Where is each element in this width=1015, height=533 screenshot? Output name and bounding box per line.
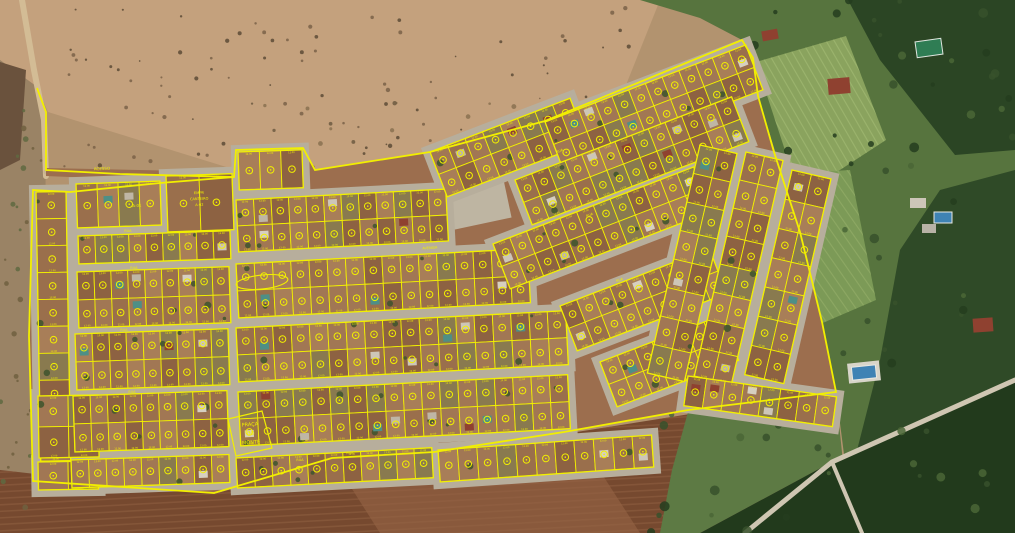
vegetation-speckle: [397, 18, 401, 22]
block: 12.0012.0012.00: [238, 150, 303, 190]
vegetation-speckle: [908, 163, 914, 169]
vegetation-speckle: [984, 481, 990, 487]
lot-dimension-label: 12.00: [535, 313, 542, 316]
lot-dimension-label: 12.00: [244, 392, 251, 395]
block: 12.0012.0012.0012.0012.0012.0012.0012.00…: [71, 454, 230, 488]
vegetation-speckle: [132, 155, 136, 159]
vegetation-speckle: [272, 129, 275, 132]
lot-dimension-label: 12.00: [553, 312, 560, 315]
lot-dimension-label: 12.00: [95, 396, 102, 399]
farm-roof-right-2: [922, 224, 936, 233]
lot-dimension-label: 12.00: [317, 388, 324, 391]
vegetation-speckle: [69, 49, 71, 51]
lot-dimension-label: 12.00: [80, 335, 87, 338]
lot-dimension-label: 12.00: [50, 397, 57, 400]
lot-dimension-label: 12.00: [50, 463, 57, 466]
lot-dimension-label: 12.00: [600, 439, 607, 442]
vegetation-speckle: [909, 142, 919, 152]
lot-dimension-label: 12.00: [201, 232, 208, 235]
vegetation-speckle: [93, 146, 96, 149]
lot-dimension-label: 12.00: [333, 260, 340, 263]
vegetation-speckle: [117, 68, 120, 71]
lot-dimension-label: 12.00: [245, 152, 252, 155]
street-name-label: RUA: [326, 385, 334, 389]
vegetation-speckle: [263, 57, 266, 60]
lot-dimension-label: 12.00: [294, 198, 301, 201]
vegetation-speckle: [386, 88, 390, 92]
vegetation-speckle: [918, 474, 922, 478]
lot-dimension-label: 12.00: [99, 272, 106, 275]
vegetation-speckle: [783, 514, 790, 521]
vegetation-speckle: [961, 293, 966, 298]
lot-dimension-label: 12.00: [442, 254, 449, 257]
vegetation-speckle: [889, 80, 897, 88]
lot-dimension-label: 12.00: [278, 262, 285, 265]
vegetation-speckle: [602, 46, 604, 48]
vegetation-speckle: [660, 501, 670, 511]
vegetation-speckle: [314, 49, 317, 52]
vegetation-speckle: [271, 39, 275, 43]
vegetation-speckle: [19, 228, 22, 231]
vegetation-speckle: [1, 479, 6, 484]
block: 12.0012.0012.0012.0012.0012.0012.0012.00…: [77, 267, 231, 328]
lot-dimension-label: 12.00: [199, 330, 206, 333]
lot-dimension-label: 12.00: [131, 333, 138, 336]
lot-dimension-label: 12.00: [167, 270, 174, 273]
vegetation-speckle: [460, 129, 462, 131]
lot-dimension-label: 12.00: [242, 264, 249, 267]
lot-dimension-label: 12.00: [94, 460, 101, 463]
lot-dimension-label: 12.00: [445, 382, 452, 385]
lot-dimension-label: 12.00: [49, 269, 56, 272]
lot-dimension-label: 12.00: [409, 384, 416, 387]
vegetation-speckle: [971, 504, 980, 513]
canteiro-label: A-02: [195, 203, 203, 207]
house-roof: [328, 199, 337, 206]
vegetation-speckle: [23, 136, 29, 142]
vegetation-speckle: [967, 110, 976, 119]
lot-dimension-label: 12.00: [217, 268, 224, 271]
vegetation-speckle: [392, 101, 396, 105]
vegetation-speckle: [511, 73, 514, 76]
lot-dimension-label: 12.00: [483, 447, 490, 450]
lot-dimension-label: 12.00: [364, 194, 371, 197]
vegetation-speckle: [656, 513, 661, 518]
lot-dimension-label: 12.00: [542, 443, 549, 446]
lot-dimension-label: 12.00: [276, 199, 283, 202]
vegetation-speckle: [222, 142, 226, 146]
vegetation-speckle: [72, 53, 76, 57]
vegetation-speckle: [710, 485, 720, 495]
lot-dimension-label: 12.00: [479, 252, 486, 255]
vegetation-speckle: [887, 359, 896, 368]
lot-dimension-label: 12.00: [48, 193, 55, 196]
vegetation-speckle: [269, 84, 271, 86]
satellite-map-svg[interactable]: 12.0012.0012.0012.0012.0012.0012.0012.00…: [0, 0, 1015, 533]
lot-dimension-label: 12.00: [50, 296, 57, 299]
vegetation-speckle: [585, 96, 588, 99]
vegetation-speckle: [978, 8, 988, 18]
vegetation-speckle: [129, 79, 132, 82]
lot-dimension-label: 12.00: [346, 195, 353, 198]
lot-dimension-label: 12.00: [100, 236, 107, 239]
lot-dimension-label: 12.00: [311, 197, 318, 200]
vegetation-speckle: [10, 202, 15, 207]
vegetation-speckle: [180, 15, 182, 17]
vegetation-speckle: [194, 76, 198, 80]
vegetation-speckle: [868, 141, 874, 147]
lot-dimension-label: 12.00: [49, 242, 56, 245]
lot-dimension-label: 12.00: [480, 316, 487, 319]
vegetation-speckle: [383, 82, 386, 85]
lot-dimension-label: 12.00: [147, 394, 154, 397]
block: 12.0012.0012.0012.0012.0012.0012.0012.00…: [75, 329, 230, 390]
lot-dimension-label: 12.00: [112, 395, 119, 398]
lot-dimension-label: 12.00: [313, 455, 320, 458]
block: 12.0012.0012.0012.0012.0012.0012.0012.00…: [73, 391, 229, 452]
vegetation-speckle: [318, 141, 323, 146]
lot-dimension-label: 12.00: [352, 323, 359, 326]
vegetation-speckle: [623, 6, 627, 10]
lot-dimension-label: 12.00: [407, 320, 414, 323]
lot-dimension-label: 12.00: [217, 456, 224, 459]
lot-dimension-label: 12.00: [148, 332, 155, 335]
vegetation-speckle: [286, 38, 289, 41]
lot-dimension-label: 12.00: [277, 456, 284, 459]
vegetation-speckle: [320, 94, 323, 97]
lot-dimension-label: 12.00: [381, 193, 388, 196]
vegetation-speckle: [872, 18, 877, 23]
lot-dimension-label: 12.00: [462, 317, 469, 320]
street-name-label: RUA: [316, 321, 324, 325]
vegetation-speckle: [22, 109, 25, 112]
vegetation-speckle: [262, 30, 266, 34]
pool-green-top-right: [915, 38, 943, 57]
lot-dimension-label: 12.00: [260, 263, 267, 266]
vegetation-speckle: [949, 58, 954, 63]
vegetation-speckle: [85, 59, 87, 61]
vegetation-speckle: [329, 127, 332, 130]
lot-dimension-label: 12.00: [83, 237, 90, 240]
vegetation-speckle: [897, 427, 905, 435]
lot-dimension-label: 12.00: [537, 377, 544, 380]
vegetation-speckle: [63, 165, 65, 167]
lot-dimension-label: 12.00: [370, 322, 377, 325]
lot-dimension-label: 12.00: [164, 457, 171, 460]
vegetation-speckle: [122, 9, 124, 11]
vegetation-speckle: [139, 60, 141, 62]
lot-dimension-label: 12.00: [464, 449, 471, 452]
vegetation-speckle: [210, 57, 213, 60]
vegetation-speckle: [14, 374, 19, 379]
lot-dimension-label: 12.00: [50, 350, 57, 353]
vegetation-speckle: [124, 106, 128, 110]
vegetation-speckle: [466, 114, 471, 119]
lot-dimension-label: 12.00: [443, 318, 450, 321]
vegetation-speckle: [864, 318, 870, 324]
street-name-label: RUA: [346, 451, 354, 455]
block-a01-label: A-01: [132, 203, 142, 208]
vegetation-speckle: [365, 146, 368, 149]
vegetation-speckle: [25, 220, 29, 224]
vegetation-speckle: [342, 122, 345, 125]
lot-dimension-label: 12.00: [164, 394, 171, 397]
lot-dimension-label: 12.00: [97, 334, 104, 337]
lot-dimension-label: 12.00: [242, 458, 249, 461]
vegetation-speckle: [870, 234, 880, 244]
vegetation-speckle: [390, 128, 394, 132]
lot-dimension-label: 12.00: [117, 235, 124, 238]
lot-dimension-label: 12.00: [390, 385, 397, 388]
lot-dimension-label: 12.00: [184, 233, 191, 236]
vegetation-speckle: [991, 69, 1000, 78]
vegetation-speckle: [27, 413, 29, 415]
lot-dimension-label: 12.00: [399, 192, 406, 195]
vegetation-speckle: [4, 281, 9, 286]
lot-dimension-label: 12.00: [372, 386, 379, 389]
lot-dimension-label: 12.00: [434, 190, 441, 193]
vegetation-speckle: [826, 453, 831, 458]
vegetation-speckle: [386, 143, 388, 145]
map-viewport[interactable]: 12.0012.0012.0012.0012.0012.0012.0012.00…: [0, 0, 1015, 533]
red-roof-house-southeast: [973, 317, 994, 332]
lot-dimension-label: 12.00: [182, 331, 189, 334]
red-roof-house-grove: [827, 77, 850, 95]
vegetation-speckle: [434, 97, 437, 100]
vegetation-speckle: [21, 126, 27, 132]
vegetation-speckle: [283, 102, 287, 106]
lot-dimension-label: 12.00: [112, 459, 119, 462]
lot-dimension-label: 12.00: [216, 330, 223, 333]
lot-dimension-label: 12.00: [425, 319, 432, 322]
vegetation-speckle: [16, 380, 18, 382]
lot-dimension-label: 12.00: [165, 332, 172, 335]
lot-dimension-label: 12.00: [639, 436, 646, 439]
lot-dimension-label: 12.00: [129, 459, 136, 462]
vegetation-speckle: [618, 29, 622, 33]
lot-dimension-label: 12.00: [351, 259, 358, 262]
lot-dimension-label: 12.00: [150, 270, 157, 273]
lot-dimension-label: 12.00: [427, 383, 434, 386]
lot-dimension-label: 12.00: [151, 234, 158, 237]
vegetation-speckle: [1005, 95, 1012, 102]
vegetation-speckle: [160, 76, 162, 78]
lot-dimension-label: 12.00: [498, 315, 505, 318]
vegetation-speckle: [840, 350, 846, 356]
vegetation-speckle: [388, 144, 392, 148]
house-roof: [763, 407, 773, 415]
vegetation-speckle: [827, 471, 831, 475]
vegetation-speckle: [878, 33, 882, 37]
lot-dimension-label: 12.00: [580, 441, 587, 444]
vegetation-speckle: [15, 267, 20, 272]
lot-dimension-label: 12.00: [366, 452, 373, 455]
lot-dimension-label: 12.00: [260, 327, 267, 330]
vegetation-speckle: [893, 301, 898, 306]
vegetation-speckle: [75, 59, 78, 62]
lot-dimension-label: 12.00: [218, 232, 225, 235]
street-name-label: RUA: [120, 328, 128, 332]
vegetation-speckle: [563, 39, 567, 43]
vegetation-speckle: [384, 102, 388, 106]
street-name-label: RUA: [128, 390, 136, 394]
vegetation-speckle: [488, 102, 491, 105]
lot-dimension-label: 12.00: [200, 268, 207, 271]
vegetation-speckle: [22, 505, 28, 511]
lot-dimension-label: 12.00: [181, 393, 188, 396]
vegetation-speckle: [936, 473, 945, 482]
lot-dimension-label: 12.00: [517, 314, 524, 317]
vegetation-speckle: [32, 147, 35, 150]
access-road-label: ACESSO: [94, 166, 110, 172]
lot-dimension-label: 12.00: [259, 457, 266, 460]
lot-dimension-label: 12.00: [335, 388, 342, 391]
vegetation-speckle: [627, 44, 631, 48]
lot-dimension-label: 12.00: [198, 392, 205, 395]
vegetation-speckle: [7, 466, 10, 469]
vegetation-speckle: [109, 65, 112, 68]
street-name-label: RUA: [124, 229, 132, 233]
vegetation-speckle: [225, 39, 229, 43]
vegetation-speckle: [238, 31, 242, 35]
lot-dimension-label: 12.00: [183, 269, 190, 272]
vegetation-speckle: [263, 104, 266, 107]
lot-dimension-label: 12.00: [104, 184, 111, 187]
vegetation-speckle: [68, 73, 71, 76]
lot-dimension-label: 12.00: [329, 196, 336, 199]
vegetation-speckle: [979, 469, 987, 477]
lot-dimension-label: 12.00: [297, 261, 304, 264]
lot-dimension-label: 12.00: [464, 381, 471, 384]
vegetation-speckle: [351, 140, 355, 144]
lot-dimension-label: 12.00: [147, 458, 154, 461]
vegetation-speckle: [315, 35, 319, 39]
house-roof: [443, 334, 452, 341]
lot-dimension-label: 12.00: [51, 377, 58, 380]
vegetation-speckle: [162, 115, 166, 119]
lot-dimension-label: 12.00: [331, 454, 338, 457]
lot-dimension-label: 12.00: [116, 271, 123, 274]
lot-dimension-label: 12.00: [78, 397, 85, 400]
vegetation-speckle: [148, 159, 152, 163]
vegetation-speckle: [950, 198, 957, 205]
house-roof: [259, 215, 268, 222]
lot-dimension-label: 12.00: [242, 200, 249, 203]
vegetation-speckle: [511, 104, 516, 109]
canteiro-label: CANTEIRO: [190, 197, 209, 202]
vegetation-speckle: [75, 9, 77, 11]
vegetation-speckle: [833, 133, 837, 137]
lot-dimension-label: 12.00: [561, 442, 568, 445]
lot-dimension-label: 12.00: [297, 325, 304, 328]
vegetation-speckle: [429, 139, 432, 142]
vegetation-speckle: [736, 433, 744, 441]
vegetation-speckle: [784, 147, 792, 155]
lot-dimension-label: 12.00: [461, 253, 468, 256]
vegetation-speckle: [152, 112, 154, 114]
pool-blue-southeast: [851, 365, 876, 380]
lot-dimension-label: 12.00: [555, 376, 562, 379]
vegetation-speckle: [561, 34, 565, 38]
vegetation-speckle: [543, 64, 545, 66]
farm-roof-right-1: [910, 198, 926, 208]
lot-dimension-label: 12.00: [388, 257, 395, 260]
vegetation-speckle: [228, 77, 230, 79]
vegetation-speckle: [11, 453, 14, 456]
lot-dimension-label: 12.00: [130, 395, 137, 398]
canteiro-label: EMPR: [194, 191, 205, 195]
vegetation-speckle: [301, 59, 304, 62]
vegetation-speckle: [300, 112, 304, 116]
vegetation-speckle: [709, 513, 714, 518]
block: 12.0012.0012.0012.0012.0012.0012.0012.00…: [78, 231, 231, 264]
street-name-label: RUA: [296, 458, 304, 462]
block: 12.0012.0012.0012.0012.0012.0012.0012.00…: [236, 189, 448, 252]
vegetation-speckle: [422, 123, 425, 126]
lot-dimension-label: 12.00: [199, 456, 206, 459]
lot-dimension-label: 12.00: [299, 389, 306, 392]
lot-dimension-label: 12.00: [333, 324, 340, 327]
house-roof: [427, 412, 436, 419]
vegetation-speckle: [876, 255, 882, 261]
vegetation-speckle: [814, 444, 821, 451]
vegetation-speckle: [882, 167, 889, 174]
vegetation-speckle: [416, 108, 419, 111]
lot-dimension-label: 12.00: [262, 391, 269, 394]
vegetation-speckle: [430, 81, 432, 83]
lot-dimension-label: 12.00: [215, 392, 222, 395]
lot-dimension-label: 12.00: [77, 461, 84, 464]
vegetation-speckle: [197, 153, 200, 156]
lot-dimension-label: 12.00: [242, 328, 249, 331]
pool-blue-right: [934, 212, 952, 223]
lot-dimension-label: 12.00: [279, 326, 286, 329]
lot-dimension-label: 12.00: [388, 321, 395, 324]
vegetation-speckle: [396, 136, 400, 140]
vegetation-speckle: [192, 118, 194, 120]
lot-dimension-label: 12.00: [288, 151, 295, 154]
street-name-label: RUA: [130, 266, 138, 270]
lot-dimension-label: 12.00: [168, 234, 175, 237]
lot-dimension-label: 12.00: [503, 446, 510, 449]
vegetation-speckle: [11, 331, 16, 336]
lot-dimension-label: 12.00: [133, 271, 140, 274]
vegetation-speckle: [842, 227, 848, 233]
praca-label: PRAÇA: [241, 421, 258, 428]
vegetation-speckle: [833, 9, 841, 17]
house-roof: [199, 471, 208, 478]
lot-dimension-label: 12.00: [267, 152, 274, 155]
vegetation-speckle: [40, 159, 43, 162]
block: 12.0012.0012.0012.00: [76, 181, 161, 228]
lot-dimension-label: 12.00: [50, 323, 57, 326]
lot-dimension-label: 12.00: [354, 387, 361, 390]
vegetation-speckle: [924, 428, 930, 434]
lot-dimension-label: 12.00: [519, 378, 526, 381]
house-roof: [261, 294, 270, 301]
lot-dimension-label: 12.00: [82, 273, 89, 276]
vegetation-speckle: [849, 161, 854, 166]
vegetation-speckle: [959, 306, 967, 314]
vegetation-speckle: [21, 165, 27, 171]
praca-label: DO: [246, 431, 254, 438]
vegetation-speckle: [15, 441, 18, 444]
vegetation-speckle: [931, 82, 935, 86]
vegetation-speckle: [773, 10, 777, 14]
vegetation-speckle: [882, 347, 887, 352]
vegetation-speckle: [363, 152, 366, 155]
vegetation-speckle: [160, 85, 162, 87]
